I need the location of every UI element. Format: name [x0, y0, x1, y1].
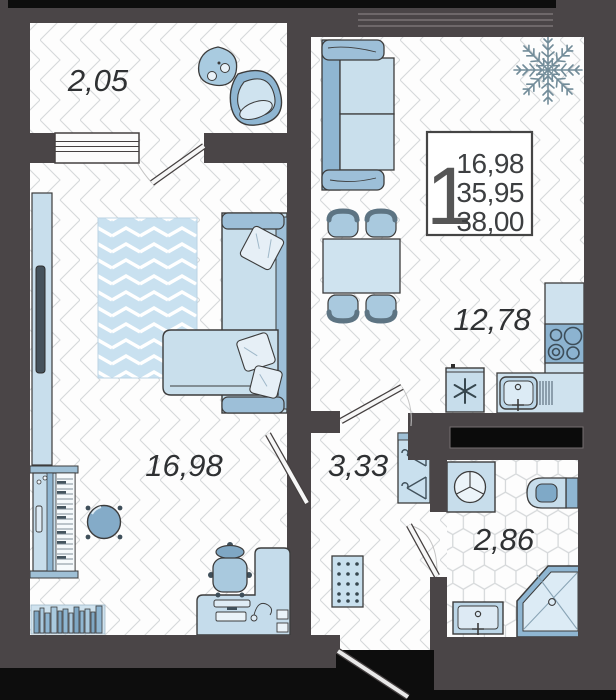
toilet — [527, 478, 578, 508]
tv-console — [32, 193, 52, 465]
monitor-icon — [214, 600, 250, 607]
balcony-table — [199, 47, 237, 85]
bookshelf — [31, 605, 105, 634]
total-area-value: 38,00 — [456, 206, 524, 237]
wall-top-balcony — [0, 8, 287, 23]
armrest — [222, 213, 284, 229]
kitchen-area-label: 12,78 — [453, 302, 531, 337]
toilet-tank — [566, 478, 578, 508]
wall-bottom-left — [0, 635, 340, 668]
wall-balcony-div-right — [204, 133, 287, 163]
keyboard-icon — [216, 612, 246, 621]
wall-hall-top — [287, 411, 340, 433]
bathroom-area-label: 2,86 — [473, 522, 535, 557]
armrest — [322, 40, 384, 60]
wall-left — [0, 8, 30, 668]
kitchen-sink — [500, 377, 537, 411]
drain-icon — [549, 599, 556, 606]
plant-icon — [514, 36, 582, 104]
dining-chair — [328, 211, 358, 237]
balcony-window — [55, 133, 139, 163]
floor-plan-svg: 1 16,98 35,95 38,00 2,05 16,98 12,78 3,3… — [0, 0, 616, 700]
tv-icon — [36, 266, 45, 373]
wall-living-kitchen — [287, 8, 311, 423]
info-badge: 1 16,98 35,95 38,00 — [426, 132, 532, 242]
piano — [30, 466, 78, 578]
living-area-label: 16,98 — [145, 448, 223, 483]
floor-plan: 1 16,98 35,95 38,00 2,05 16,98 12,78 3,3… — [0, 0, 616, 700]
mouse-icon — [251, 615, 257, 621]
sofa — [322, 40, 394, 190]
shoe-cabinet — [332, 556, 363, 607]
pillow — [249, 365, 283, 399]
dining-chair — [366, 211, 396, 237]
hallway-area-label: 3,33 — [328, 448, 388, 483]
wall-bath-left-upper — [430, 460, 447, 512]
cup-icon — [208, 72, 217, 81]
wall-right-upper — [584, 8, 616, 420]
balcony-area-label: 2,05 — [67, 63, 129, 98]
dining-chair — [328, 295, 358, 321]
wall-balcony-div-left — [30, 133, 55, 163]
hanging-chair — [230, 71, 281, 126]
living-area-value: 16,98 — [456, 148, 524, 179]
apartment-area-value: 35,95 — [456, 177, 524, 208]
washing-machine — [447, 462, 495, 512]
bath-sink — [453, 602, 503, 635]
dining-chair — [366, 295, 396, 321]
fridge — [446, 364, 484, 412]
armrest — [222, 397, 284, 413]
wall-top — [287, 8, 616, 37]
balcony-rail — [8, 0, 556, 8]
cup-icon — [221, 64, 230, 73]
wall-bottom-right — [430, 637, 616, 690]
vent-shaft — [450, 427, 583, 448]
dining-table — [323, 239, 400, 293]
